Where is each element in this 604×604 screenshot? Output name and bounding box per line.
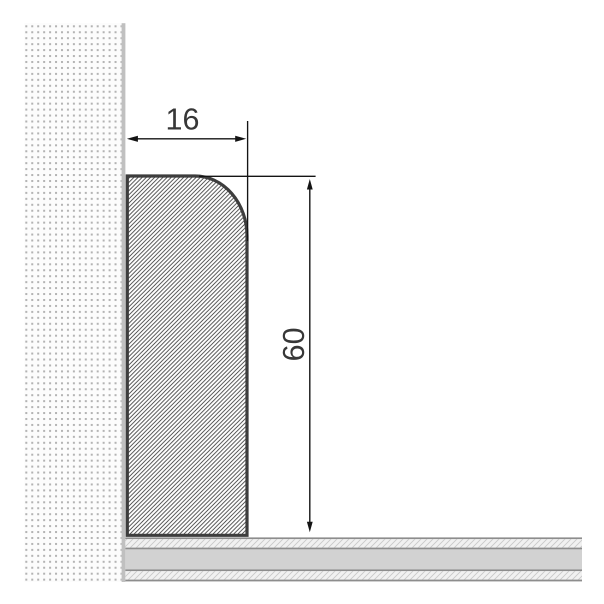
svg-text:16: 16 bbox=[166, 103, 200, 137]
svg-text:60: 60 bbox=[277, 327, 311, 361]
